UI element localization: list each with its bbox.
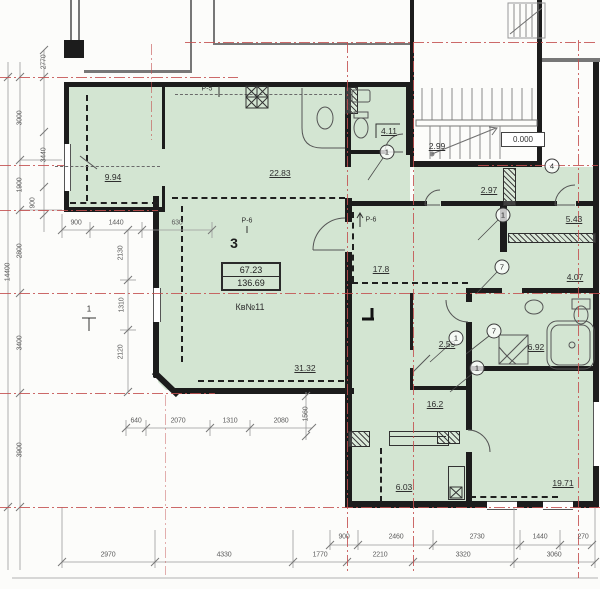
floor-plan: 9.94 22.83 4.11 2.99 2.97 5.43 4.07 17.8… xyxy=(0,0,600,589)
kitchen-sink-icon xyxy=(302,88,345,148)
room-area-label: 19.71 xyxy=(552,478,573,488)
room-area-label: 16.2 xyxy=(427,399,444,409)
axis-bubble: 1 xyxy=(496,208,511,223)
room-area-label: 6.92 xyxy=(528,342,545,352)
stove-icon xyxy=(246,86,268,108)
room-area-label: 2.99 xyxy=(429,141,446,151)
axis-line xyxy=(413,42,414,574)
axis-bubble-number: 4 xyxy=(550,162,554,171)
dim-label: 3440 xyxy=(41,148,48,163)
plan-linework xyxy=(0,0,600,589)
dim-label: 270 xyxy=(577,534,588,541)
axis-line xyxy=(0,293,600,294)
axis-line xyxy=(165,395,166,575)
dim-label: 2210 xyxy=(373,552,388,559)
dim-label: 1770 xyxy=(313,552,328,559)
dim-label: 2970 xyxy=(101,552,116,559)
dim-label: 630 xyxy=(171,220,182,227)
dim-label: 1440 xyxy=(533,534,548,541)
sink-icon xyxy=(525,300,543,314)
beam-label-p6: Р-6 xyxy=(366,217,377,224)
area-table: 67.23 136.69 xyxy=(221,262,281,291)
dim-label: 640 xyxy=(130,418,141,425)
elevation-mark: 0.000 xyxy=(501,132,545,147)
axis-bubble: 7 xyxy=(487,324,502,339)
bathtub-icon xyxy=(547,321,594,369)
dim-label: 2800 xyxy=(17,244,24,259)
area-total: 136.69 xyxy=(223,277,279,289)
beam-label-p5: Р-5 xyxy=(202,86,213,93)
axis-bubble-number: 1 xyxy=(454,334,458,343)
dim-label: 2070 xyxy=(171,418,186,425)
dim-label: 2120 xyxy=(118,345,125,360)
axis-line xyxy=(185,42,598,43)
area-upper: 67.23 xyxy=(223,264,279,277)
axis-line xyxy=(0,77,238,78)
dim-label: 3900 xyxy=(17,443,24,458)
axis-line xyxy=(0,507,600,508)
dim-label: 1310 xyxy=(223,418,238,425)
axis-bubble: 1 xyxy=(380,145,395,160)
chamfer-corner xyxy=(150,372,178,398)
shower-icon xyxy=(499,335,528,364)
room-area-label: 5.43 xyxy=(566,214,583,224)
axis-line xyxy=(578,40,579,578)
dim-label: 3400 xyxy=(17,336,24,351)
fridge-x xyxy=(450,487,462,498)
dim-label: 3000 xyxy=(17,111,24,126)
beam-label-p6: Р-6 xyxy=(242,218,253,225)
axis-bubble: 4 xyxy=(545,159,560,174)
leader-lines xyxy=(368,158,498,392)
room-area-label: 31.32 xyxy=(294,363,315,373)
room-number: 3 xyxy=(230,235,238,251)
room-area-label: 17.8 xyxy=(373,264,390,274)
dim-label: 900 xyxy=(70,220,81,227)
toilet-icon xyxy=(572,299,590,324)
axis-line xyxy=(478,165,598,166)
dim-label: 3320 xyxy=(456,552,471,559)
room-area-label: 2.97 xyxy=(481,185,498,195)
room-area-label: 9.94 xyxy=(105,172,122,182)
axis-bubble: 1 xyxy=(449,331,464,346)
axis-bubble-number: 7 xyxy=(500,263,504,272)
column-mark xyxy=(362,308,374,320)
axis-bubble: 1 xyxy=(470,361,485,376)
room-area-label: 6.03 xyxy=(396,482,413,492)
dimension-lines xyxy=(8,50,598,578)
dim-label: 1900 xyxy=(17,178,24,193)
room-area-label: 22.83 xyxy=(269,168,290,178)
axis-line xyxy=(347,42,348,574)
dim-label: 2770 xyxy=(41,55,48,70)
apartment-label: Кв№11 xyxy=(235,302,264,312)
axis-bubble-number: 1 xyxy=(475,364,479,373)
dim-label: 14400 xyxy=(5,263,12,281)
axis-bubble: 7 xyxy=(495,260,510,275)
stair-glyph xyxy=(508,3,545,38)
beam-marks xyxy=(219,86,363,233)
dim-label: 4330 xyxy=(217,552,232,559)
axis-line xyxy=(0,393,215,394)
dim-label: 1440 xyxy=(109,220,124,227)
axis-line xyxy=(0,165,64,166)
dim-label: 2730 xyxy=(470,534,485,541)
axis-bubble-number: 7 xyxy=(492,327,496,336)
dim-label: 2460 xyxy=(389,534,404,541)
room-area-label: 4.11 xyxy=(381,126,397,136)
dim-label: 3060 xyxy=(547,552,562,559)
dim-label: 2080 xyxy=(274,418,289,425)
axis-line xyxy=(151,44,152,140)
dim-label: 900 xyxy=(30,197,37,208)
dim-label: 1560 xyxy=(303,407,310,422)
dim-label: 900 xyxy=(338,534,349,541)
level-mark-tee xyxy=(82,318,96,331)
elevation-value: 0.000 xyxy=(513,135,533,144)
axis-line xyxy=(0,210,158,211)
wc-411-icons xyxy=(352,90,370,138)
dim-label: 1310 xyxy=(119,298,126,313)
level-mark-label: 1 xyxy=(87,305,91,314)
axis-bubble-number: 1 xyxy=(385,148,389,157)
room-area-label: 4.07 xyxy=(567,272,584,282)
axis-bubble-number: 1 xyxy=(501,211,505,220)
dim-label: 2130 xyxy=(118,246,125,261)
